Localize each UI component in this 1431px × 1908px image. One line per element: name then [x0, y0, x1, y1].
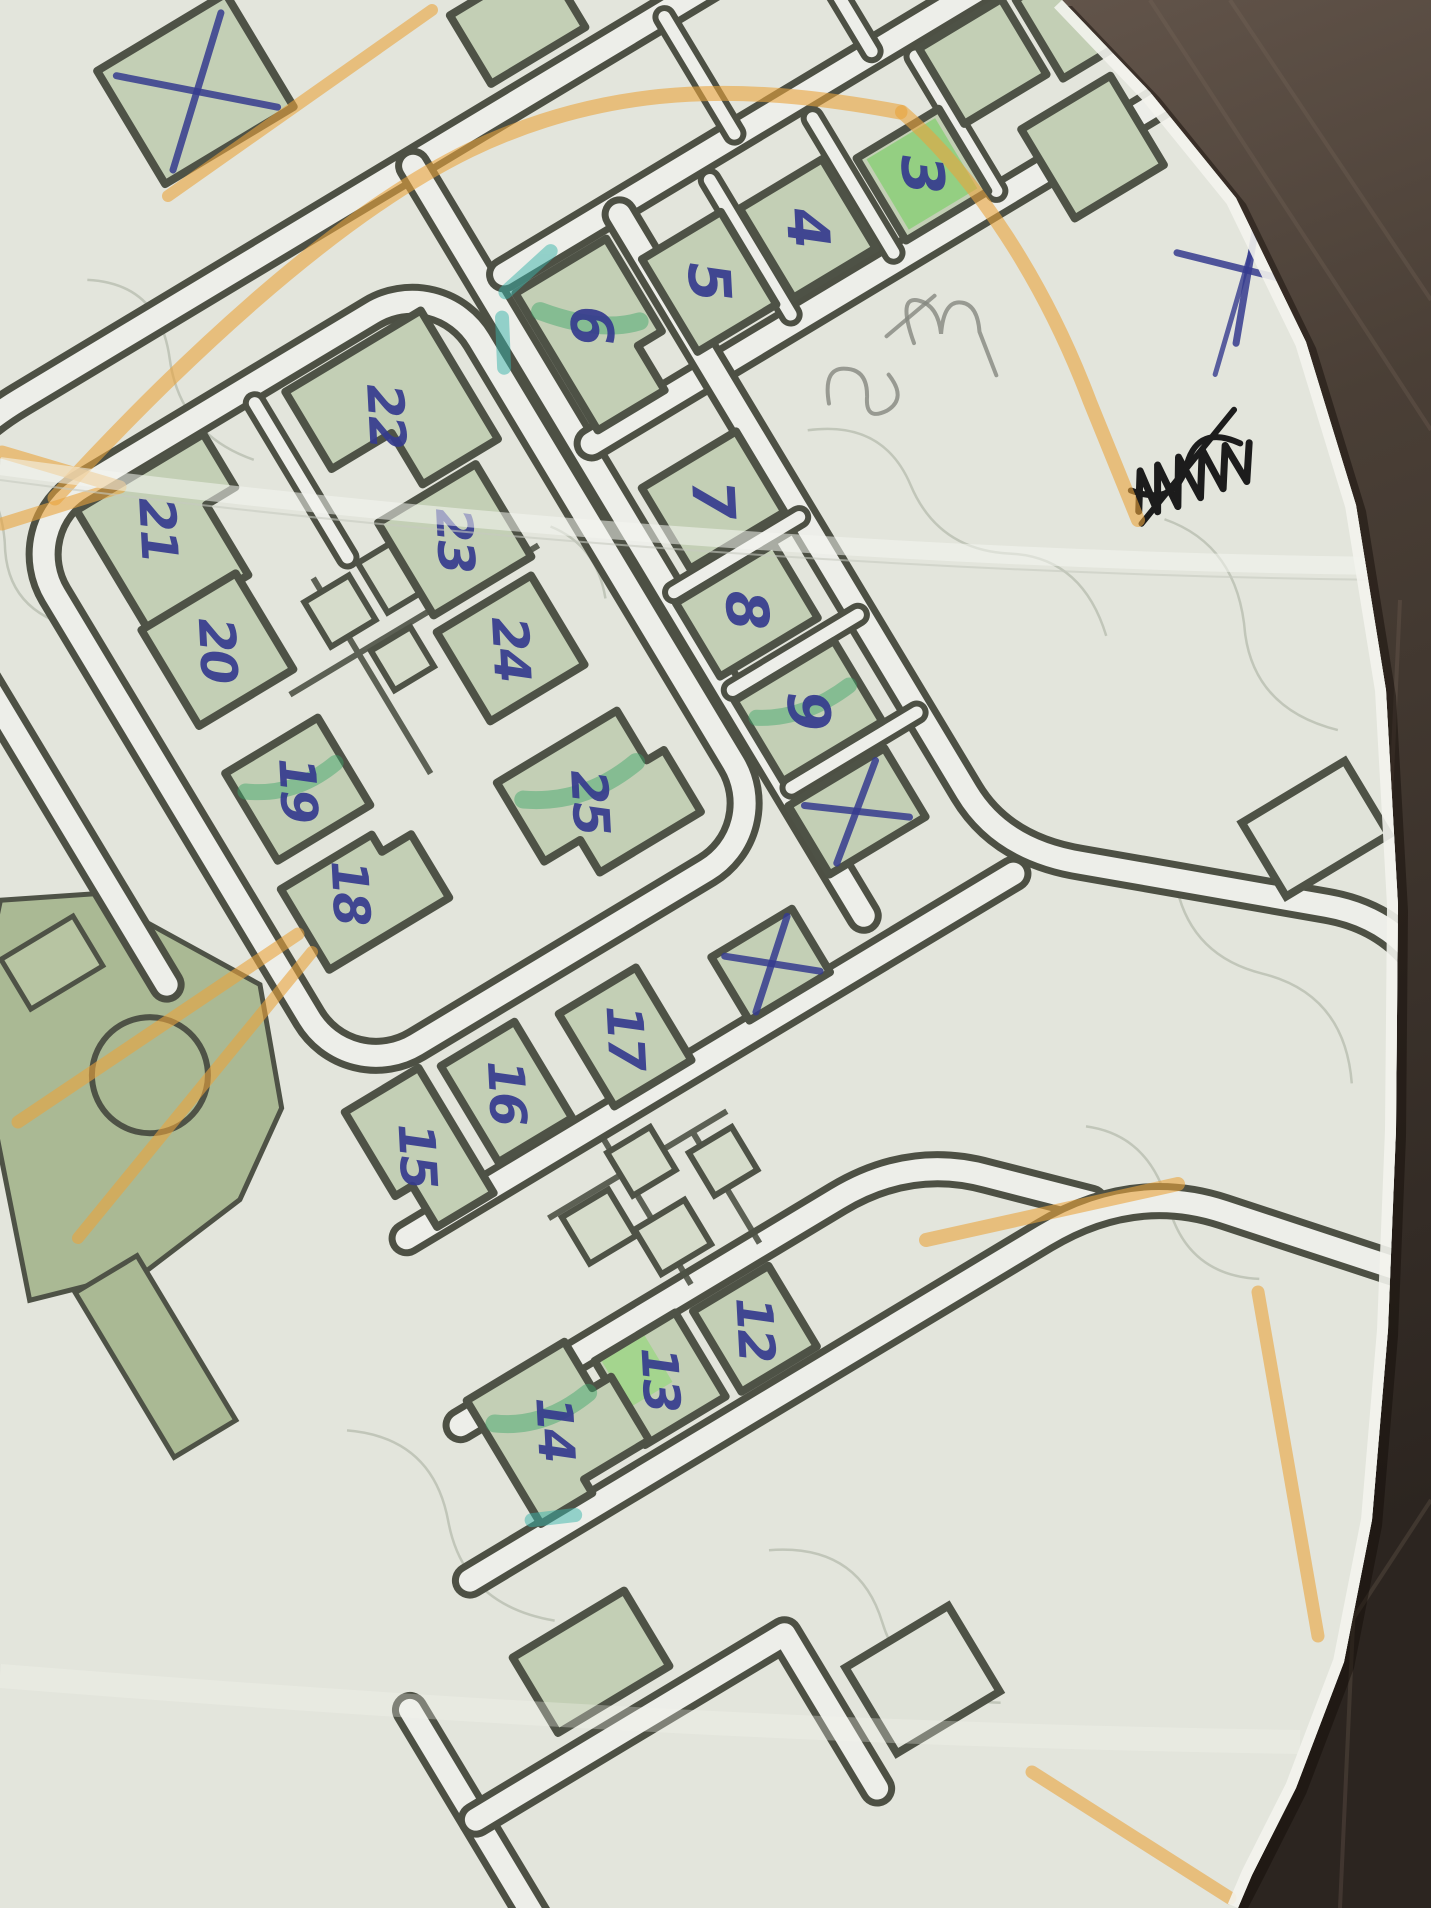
building-5-number: 5 [674, 260, 744, 304]
map-photo: 3 4 5 6 7 8 9 12 13 14 15 16 17 18 19 20… [0, 0, 1431, 1908]
map-photo-svg: 3 4 5 6 7 8 9 12 13 14 15 16 17 18 19 20… [0, 0, 1431, 1908]
building-17-number: 17 [594, 1004, 655, 1074]
building-9-number: 9 [773, 689, 843, 733]
building-19-number: 19 [267, 756, 328, 824]
building-20-number: 20 [187, 616, 248, 685]
building-25-number: 25 [559, 768, 620, 836]
building-6-number: 6 [556, 304, 626, 348]
building-22-number: 22 [355, 382, 416, 449]
building-7-number: 7 [678, 478, 748, 523]
building-12-number: 12 [724, 1296, 785, 1363]
building-16-number: 16 [476, 1059, 537, 1128]
building-18-number: 18 [319, 859, 380, 927]
building-8-number: 8 [712, 588, 782, 632]
building-24-number: 24 [480, 615, 541, 682]
building-4-number: 4 [773, 206, 843, 251]
building-14-number: 14 [524, 1395, 585, 1462]
building-21-number: 21 [127, 496, 188, 563]
building-13-number: 13 [630, 1346, 691, 1413]
building-15-number: 15 [387, 1122, 448, 1190]
